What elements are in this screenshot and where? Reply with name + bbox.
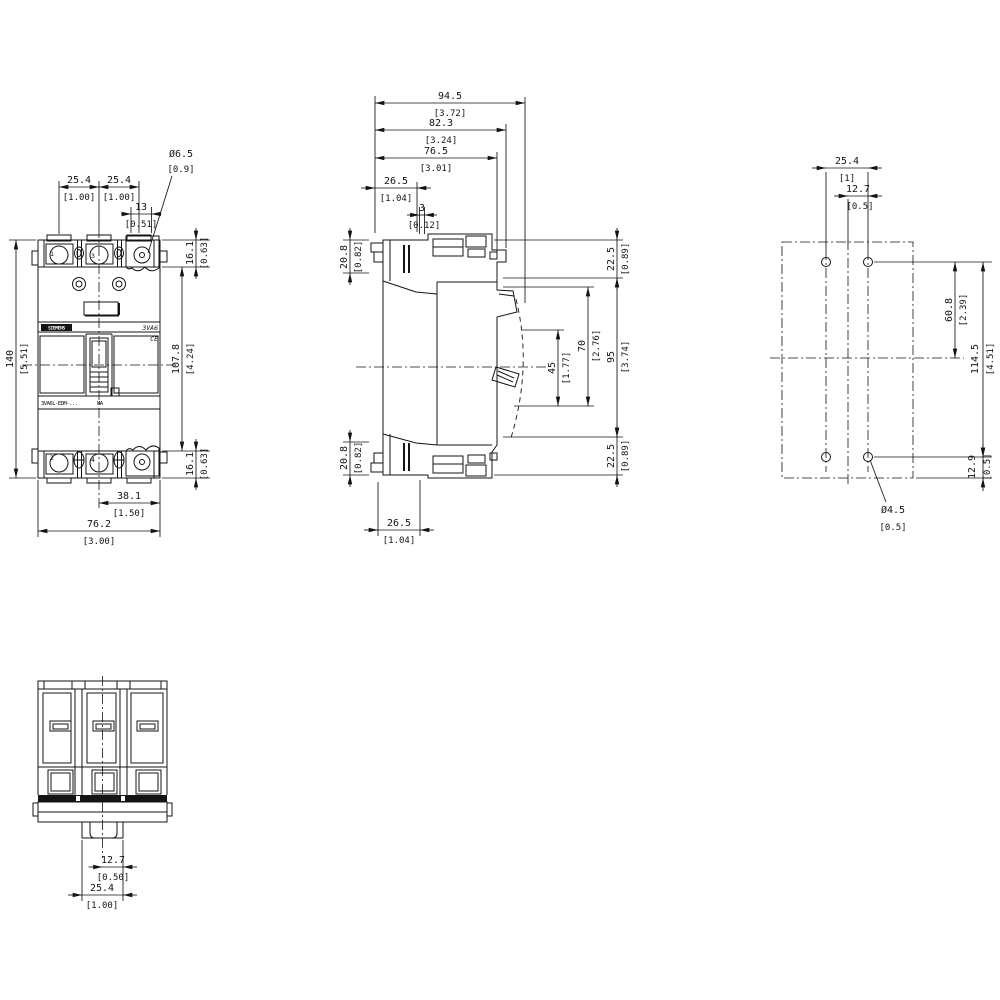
front-view: 1 3 SIEMENS 3VA6 CE 3VA6L-EDM-... MA — [5, 148, 210, 547]
plate-centerlines — [770, 240, 964, 484]
dim-label: [1.04] — [380, 194, 413, 204]
dim-label: 12.7 — [846, 184, 870, 195]
rating-label: MA — [97, 401, 104, 407]
dim-label: 20.8 — [339, 446, 350, 470]
dim-label: [0.89] — [621, 243, 631, 276]
dim-label: 12.9 — [967, 455, 978, 479]
dim-label: 45 — [547, 362, 558, 374]
breaker-front-outline — [32, 235, 167, 483]
mounting-plate-outline — [782, 242, 913, 478]
dim-label: [1] — [839, 174, 855, 184]
dim-label: 82.3 — [429, 118, 453, 129]
dim-label: [1.00] — [103, 193, 136, 203]
side-terminal-top — [433, 236, 497, 259]
side-terminal-bottom — [433, 453, 497, 476]
dim-label: Ø6.5 — [169, 148, 193, 160]
dim-label: 25.4 — [107, 175, 131, 186]
series-label: 3VA6 — [141, 324, 158, 332]
dimension-drawing-canvas: 1 3 SIEMENS 3VA6 CE 3VA6L-EDM-... MA — [0, 0, 1000, 1000]
mounting-hole-pattern-view: 25.4 [1] 12.7 [0.5] 60.8 [2.39] 114.5 [4… — [770, 156, 996, 533]
dim-label: [0.5] — [879, 523, 906, 533]
dim-label: [0.82] — [354, 241, 364, 274]
dim-label: [0.50] — [97, 873, 130, 883]
dim-label: [4.24] — [186, 343, 196, 376]
dim-label: 140 — [5, 350, 16, 368]
leader-line — [870, 460, 886, 502]
dim-label: 95 — [606, 351, 617, 363]
dim-label: 22.5 — [606, 444, 617, 468]
dim-label: 38.1 — [117, 491, 141, 502]
dim-label: [3.24] — [425, 136, 458, 146]
dim-label: 12.7 — [101, 855, 125, 866]
dim-label: [0.51] — [125, 220, 158, 230]
pole-number: 3 — [91, 252, 95, 260]
dim-label: [3.01] — [420, 164, 453, 174]
dim-label: [1.00] — [63, 193, 96, 203]
dim-label: 26.5 — [384, 176, 408, 187]
dim-label: 76.2 — [87, 519, 111, 530]
dim-label: [0.63] — [200, 448, 210, 481]
dim-label: [1.04] — [383, 536, 416, 546]
dim-label: [0.5] — [983, 453, 993, 480]
dim-label: [0.89] — [621, 440, 631, 473]
dim-label: 25.4 — [835, 156, 859, 167]
side-view: 94.5 [3.72] 82.3 [3.24] 76.5 [3.01] 26.5… — [339, 91, 631, 546]
dim-label: Ø4.5 — [881, 504, 905, 516]
dim-label: [0.12] — [408, 221, 441, 231]
dim-label: [1.00] — [86, 901, 119, 911]
dim-label: 25.4 — [67, 175, 91, 186]
toggle-side — [492, 367, 519, 387]
pole-number: 1 — [50, 250, 54, 258]
dim-label: [2.76] — [592, 330, 602, 363]
dim-label: 114.5 — [970, 344, 981, 374]
dim-label: [3.00] — [83, 537, 116, 547]
dim-label: [3.74] — [621, 341, 631, 374]
dim-label: [0.82] — [354, 442, 364, 475]
bottom-view: 12.7 [0.50] 25.4 [1.00] — [33, 676, 172, 911]
dim-label: [2.39] — [959, 294, 969, 327]
dim-label: 94.5 — [438, 91, 462, 102]
dim-label: 76.5 — [424, 146, 448, 157]
dim-label: [1.50] — [113, 509, 146, 519]
dim-label: [4.51] — [986, 343, 996, 376]
dim-label: 20.8 — [339, 245, 350, 269]
dim-label: [0.63] — [200, 237, 210, 270]
pole-number: 4 — [91, 456, 95, 464]
dim-label: [5.51] — [20, 343, 30, 376]
dim-label: [0.5] — [846, 202, 873, 212]
dim-label: 13 — [135, 202, 147, 213]
bottom-dimensions: 12.7 [0.50] 25.4 [1.00] — [68, 840, 137, 911]
dim-label: 26.5 — [387, 518, 411, 529]
technical-drawing: 1 3 SIEMENS 3VA6 CE 3VA6L-EDM-... MA — [0, 0, 1000, 1000]
pole-number: 2 — [50, 454, 54, 462]
dim-label: [1.77] — [562, 352, 572, 385]
dim-label: 60.8 — [944, 298, 955, 322]
mounting-holes — [822, 258, 873, 462]
dim-label: 16.1 — [185, 452, 196, 476]
dim-label: 16.1 — [185, 241, 196, 265]
dim-label: 3 — [419, 203, 425, 214]
breaker-side-outline — [371, 234, 517, 478]
dim-label: [0.9] — [167, 165, 194, 175]
dim-label: 70 — [577, 340, 588, 352]
brand-logo-text: SIEMENS — [48, 326, 65, 332]
plate-dimensions: 25.4 [1] 12.7 [0.5] 60.8 [2.39] 114.5 [4… — [812, 156, 996, 533]
handle-travel-arc — [510, 299, 523, 441]
dim-label: 107.8 — [171, 344, 182, 374]
dim-label: 25.4 — [90, 883, 114, 894]
model-label: 3VA6L-EDM-... — [41, 401, 78, 407]
dim-label: 22.5 — [606, 247, 617, 271]
